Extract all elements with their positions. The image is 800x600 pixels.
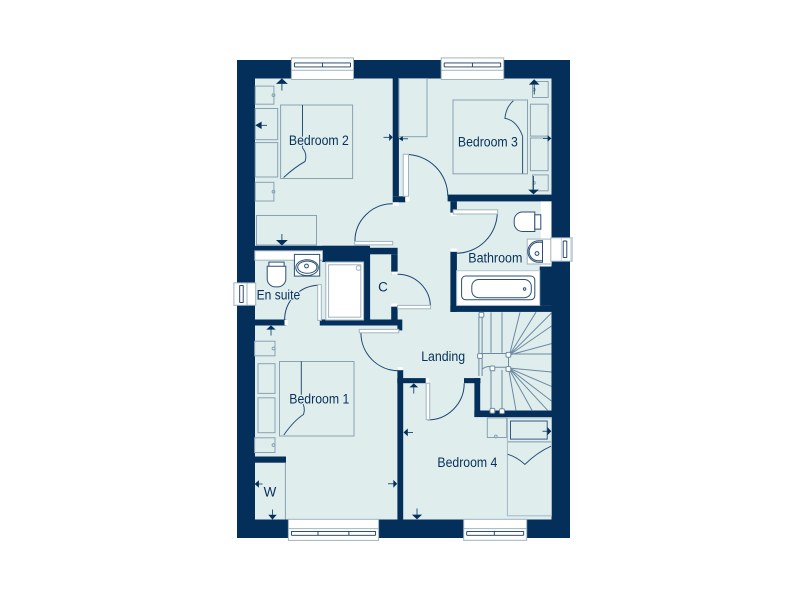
svg-text:C: C [378, 280, 388, 295]
svg-text:Bedroom 2: Bedroom 2 [289, 133, 349, 148]
svg-text:Bedroom 3: Bedroom 3 [458, 135, 518, 150]
svg-text:Bathroom: Bathroom [468, 250, 522, 265]
svg-text:W: W [264, 484, 277, 499]
svg-text:Landing: Landing [421, 349, 465, 364]
svg-text:En suite: En suite [257, 287, 301, 302]
svg-text:Bedroom 1: Bedroom 1 [289, 392, 349, 407]
svg-text:Bedroom 4: Bedroom 4 [437, 455, 497, 470]
